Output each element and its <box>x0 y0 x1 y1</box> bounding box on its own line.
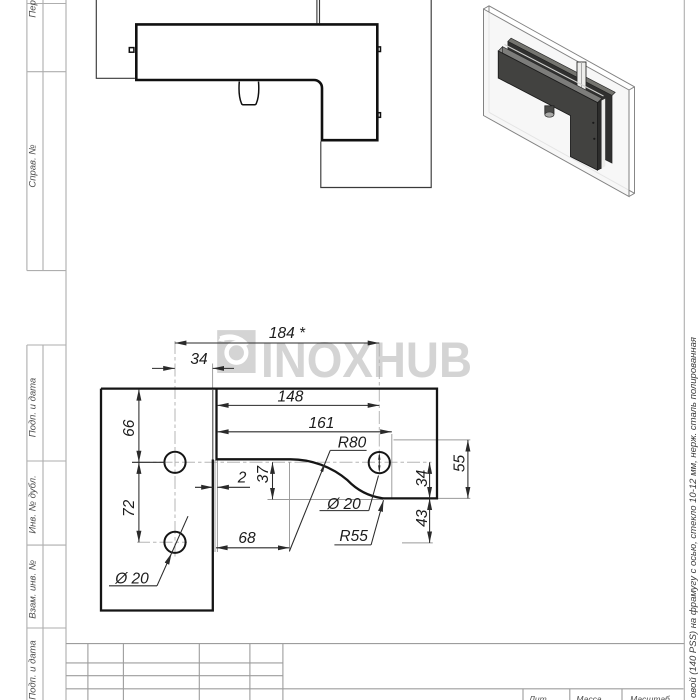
svg-text:55: 55 <box>452 455 469 473</box>
svg-text:34: 34 <box>414 469 431 487</box>
svg-text:Взам. инв. №: Взам. инв. № <box>27 560 38 619</box>
svg-text:2: 2 <box>237 469 247 486</box>
svg-text:R80: R80 <box>338 434 367 451</box>
svg-text:Справ. №: Справ. № <box>27 144 38 187</box>
svg-text:Подп. и дата: Подп. и дата <box>27 640 38 699</box>
svg-text:Ø 20: Ø 20 <box>114 571 149 588</box>
svg-text:37: 37 <box>255 465 272 484</box>
svg-text:43: 43 <box>414 509 431 527</box>
svg-text:Ø 20: Ø 20 <box>326 496 361 513</box>
svg-text:34: 34 <box>190 351 208 368</box>
svg-text:овой (140 PSS) на фрамугу с о: овой (140 PSS) на фрамугу с осью, стекло… <box>688 337 699 698</box>
svg-text:R55: R55 <box>339 528 368 545</box>
svg-text:72: 72 <box>121 499 138 517</box>
svg-text:Инв. № дубл.: Инв. № дубл. <box>27 475 38 533</box>
svg-text:Масса: Масса <box>576 694 601 700</box>
svg-text:148: 148 <box>277 388 303 405</box>
svg-text:184 *: 184 * <box>269 325 306 342</box>
svg-text:161: 161 <box>309 415 335 432</box>
svg-text:68: 68 <box>238 530 256 547</box>
svg-text:Перв. примен.: Перв. примен. <box>27 0 38 18</box>
svg-text:Лит.: Лит. <box>528 694 549 700</box>
svg-text:66: 66 <box>121 419 138 437</box>
svg-text:Подп. и дата: Подп. и дата <box>27 378 38 437</box>
svg-text:Масштаб: Масштаб <box>630 694 671 700</box>
